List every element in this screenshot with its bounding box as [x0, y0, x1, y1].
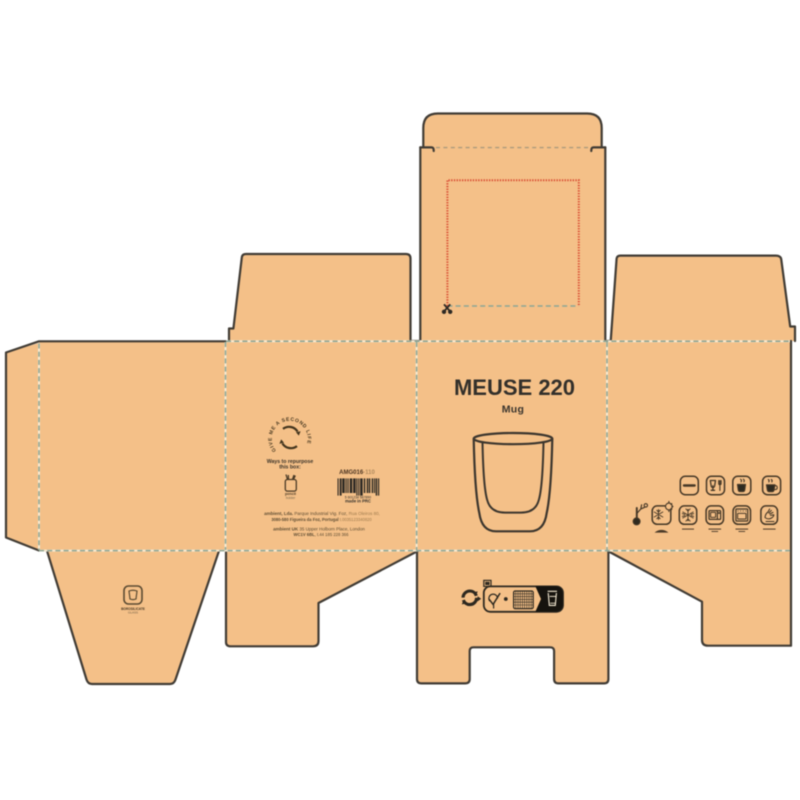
svg-text:made in PRC: made in PRC [345, 498, 371, 503]
svg-text:ambient, Lda. Parque Industria: ambient, Lda. Parque Industrial Vig. Foz… [264, 511, 380, 516]
svg-text:MEUSE 220: MEUSE 220 [454, 375, 575, 400]
svg-text:AMG016-110: AMG016-110 [339, 470, 375, 476]
svg-text:ambient UK 35 Upper Holborn Pl: ambient UK 35 Upper Holborn Place, Londo… [273, 526, 365, 531]
svg-text:GLASS: GLASS [128, 611, 138, 615]
svg-text:WC1V 6BL, t.44 185 228 366: WC1V 6BL, t.44 185 228 366 [294, 532, 350, 537]
svg-text:Mug: Mug [502, 403, 524, 415]
svg-text:3080-580 Figueira da Foz, Port: 3080-580 Figueira da Foz, Portugal t.003… [271, 517, 372, 522]
svg-text:holder: holder [286, 496, 296, 500]
svg-text:this box:: this box: [279, 465, 301, 471]
